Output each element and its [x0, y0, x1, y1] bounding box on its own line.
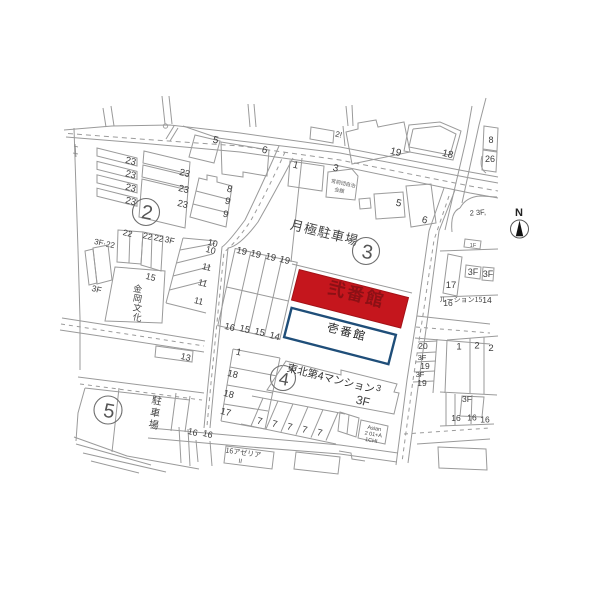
svg-text:16: 16	[467, 413, 477, 423]
svg-text:16: 16	[451, 413, 461, 423]
svg-text:17: 17	[446, 280, 457, 291]
svg-text:20: 20	[418, 341, 428, 351]
svg-text:1F: 1F	[470, 243, 477, 249]
svg-text:2 3F,: 2 3F,	[469, 207, 486, 217]
svg-text:1: 1	[456, 342, 461, 353]
svg-text:2: 2	[488, 343, 493, 354]
svg-text:8: 8	[488, 135, 493, 145]
svg-text:16: 16	[443, 298, 453, 308]
svg-text:19: 19	[417, 378, 427, 388]
svg-text:16: 16	[480, 415, 490, 425]
svg-text:2: 2	[474, 341, 479, 352]
svg-text:3F: 3F	[462, 394, 472, 404]
svg-text:3F: 3F	[483, 269, 494, 279]
svg-text:N: N	[515, 207, 523, 219]
svg-text:14: 14	[482, 295, 492, 305]
svg-text:26: 26	[485, 154, 495, 164]
svg-text:3F: 3F	[468, 267, 479, 277]
